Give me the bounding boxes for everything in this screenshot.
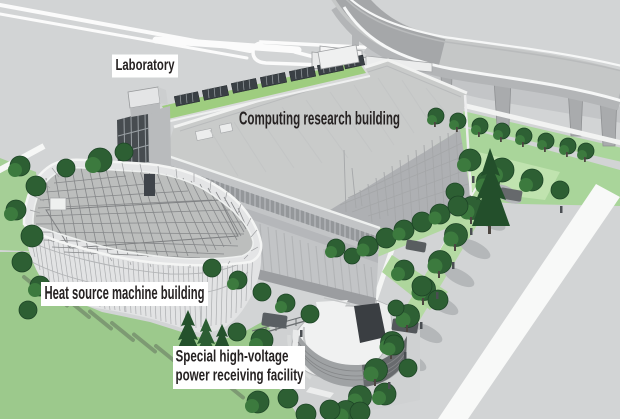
svg-text:Computing research building: Computing research building	[239, 109, 400, 129]
svg-text:Heat source machine building: Heat source machine building	[45, 283, 205, 303]
svg-text:power receiving facility: power receiving facility	[176, 367, 305, 385]
svg-text:Special high-voltage: Special high-voltage	[176, 348, 289, 366]
svg-text:Laboratory: Laboratory	[116, 57, 175, 74]
